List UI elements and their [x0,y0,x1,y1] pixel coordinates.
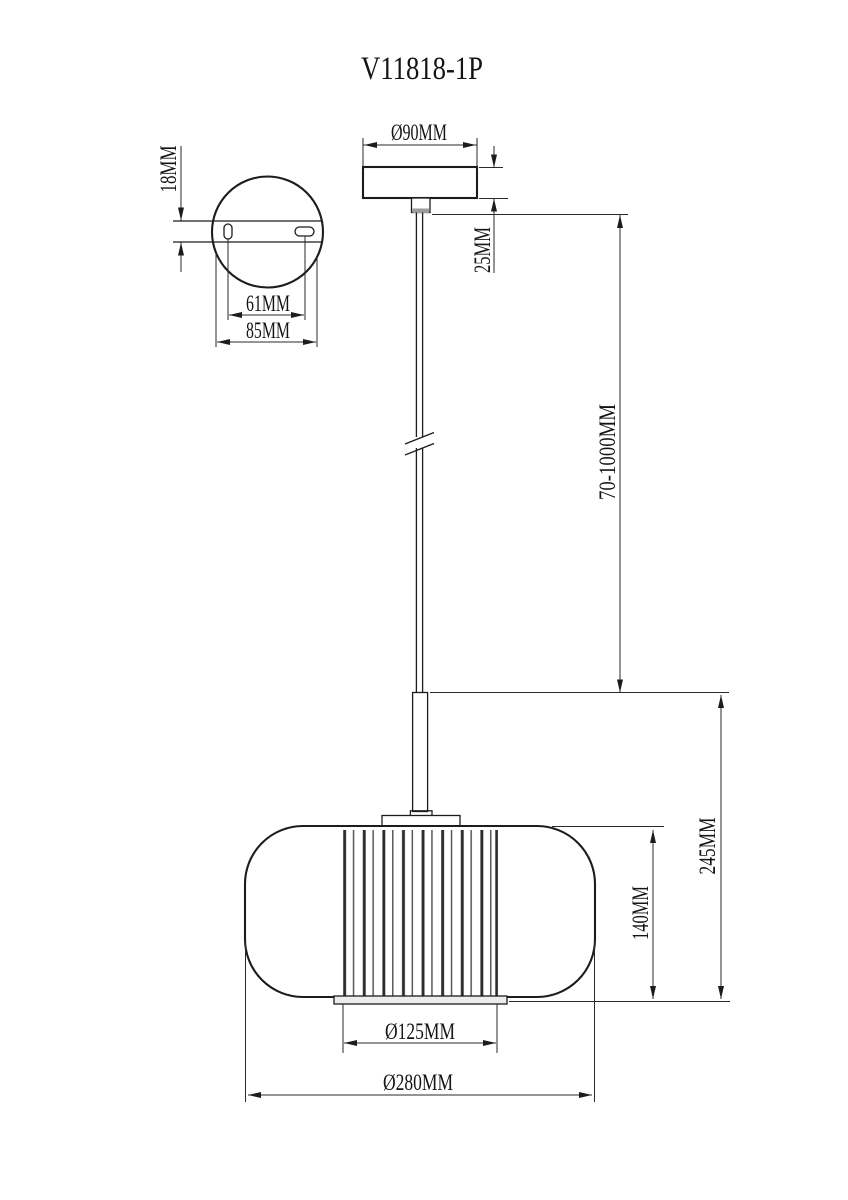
cord-grip-band [413,209,430,214]
dim-label-61mm: 61MM [246,291,290,316]
dim-label-140mm: 140MM [628,886,653,940]
dim-diffuser-diameter: Ø125MM [343,1004,497,1053]
rod-break-mark-1 [405,433,434,445]
rod-break-mark-2 [405,444,434,456]
dim-label-125mm: Ø125MM [385,1019,455,1044]
drawing-title: V11818-1P [361,51,483,87]
dim-label-280mm: Ø280MM [383,1070,453,1095]
dim-rod-length: 70-1000MM [430,215,729,693]
dim-canopy-height: 25MM [470,146,508,273]
shade-front-view: 140MM 245MM Ø125MM Ø280MM [245,695,730,1102]
keyhole-slot-right [295,227,314,236]
keyhole-slot-left [224,224,232,239]
diffuser-ribs [342,830,498,996]
rod-lower-tube [413,693,428,812]
technical-drawing-page: V11818-1P 18MM 61MM [0,0,848,1200]
dim-canopy-diameter: Ø90MM [363,120,477,166]
dim-plate-thickness: 18MM [156,146,184,273]
dim-label-245mm: 245MM [695,818,720,875]
drawing-canvas: V11818-1P 18MM 61MM [0,0,848,1200]
dim-label-25mm: 25MM [470,227,495,273]
dim-hole-spacing: 61MM [228,236,305,320]
suspension-rod: 70-1000MM [382,213,729,827]
dim-label-18mm: 18MM [156,146,181,193]
socket-holder [382,816,460,827]
dim-label-70-1000mm: 70-1000MM [595,404,620,500]
canopy-front-view: Ø90MM 25MM [363,120,508,273]
dim-label-85mm: 85MM [246,318,290,343]
diffuser-bottom-plate [334,996,507,1004]
dim-label-90mm: Ø90MM [391,120,447,145]
canopy-body [363,167,477,198]
mount-plate-top-view: 18MM 61MM 85MM [156,146,323,348]
